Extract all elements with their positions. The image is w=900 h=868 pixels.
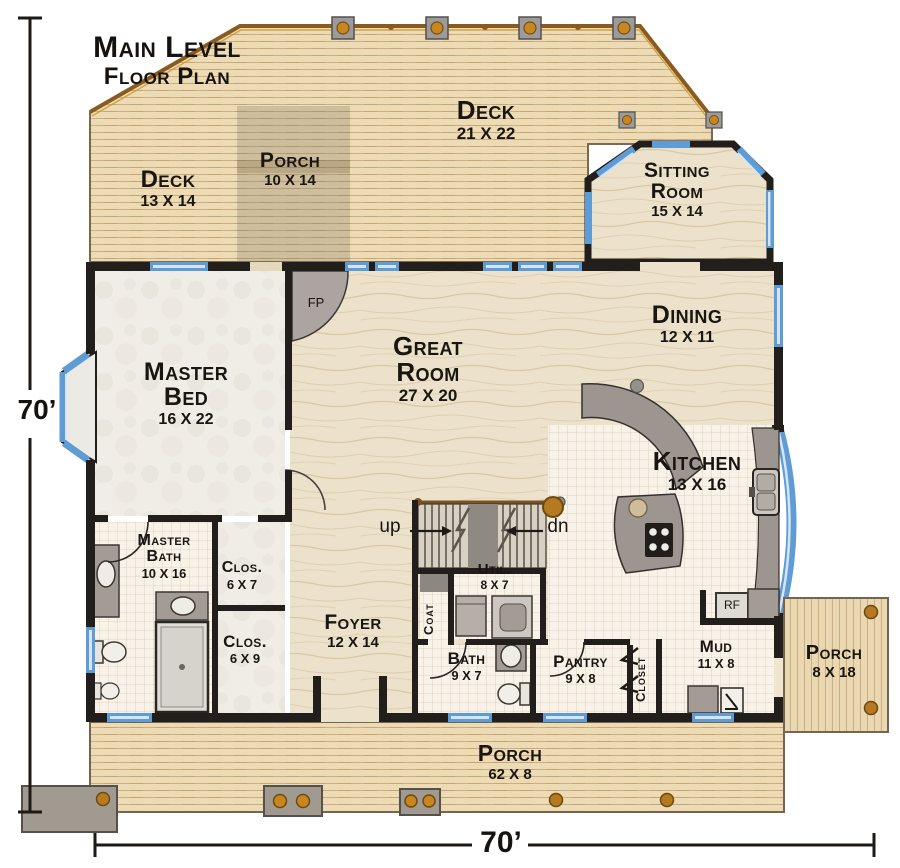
closets-floor (218, 522, 285, 713)
porch-bottom-area (22, 722, 784, 832)
room-label-bath: Bath 9 X 7 (424, 650, 509, 682)
room-label-great-room: Great Room 27 X 20 (367, 333, 489, 404)
room-label-closet-b: Clos. 6 X 9 (205, 633, 285, 665)
room-label-porch-right: Porch 8 X 18 (788, 643, 880, 680)
room-label-deck-top: Deck 21 X 22 (416, 97, 556, 142)
entry-post (313, 676, 321, 722)
shower-icon (156, 622, 208, 712)
room-label-porch-top: Porch 10 X 14 (230, 150, 350, 188)
stairs-up-label: up (368, 517, 412, 536)
washer-icon (456, 596, 486, 636)
mud-bench (688, 686, 718, 713)
toilet-icon (498, 683, 530, 705)
bidet-icon (94, 683, 119, 699)
room-label-closet-a: Clos. 6 X 7 (202, 560, 282, 591)
room-label-mud: Mud 11 X 8 (672, 638, 760, 670)
room-label-utility: Util. 8 X 7 (452, 562, 537, 591)
closet-hall-label: Closet (633, 645, 648, 713)
room-label-pantry: Pantry 9 X 8 (533, 653, 628, 685)
dimension-bottom: 70’ (462, 826, 540, 860)
floor-plan-page: Main Level Floor Plan 70’ 70’ Deck 21 X … (0, 0, 900, 868)
room-label-foyer: Foyer 12 X 14 (296, 612, 410, 650)
coat-label: Coat (421, 590, 436, 648)
utility-appliances (456, 596, 532, 638)
room-label-sitting-room: Sitting Room 15 X 14 (621, 160, 733, 219)
title-line-1: Main Level (62, 32, 272, 64)
cooktop-icon (645, 523, 673, 557)
room-label-kitchen: Kitchen 13 X 16 (607, 448, 787, 493)
step-block-2 (400, 789, 440, 815)
dimension-left: 70’ (2, 394, 72, 426)
dining-column (631, 380, 644, 393)
room-label-master-bed: Master Bed 16 X 22 (125, 360, 247, 428)
newel-post (543, 497, 563, 517)
island-post (629, 499, 647, 517)
step-block-1 (264, 786, 322, 816)
entry-post (379, 676, 387, 722)
room-label-deck-left: Deck 13 X 14 (98, 168, 238, 210)
stairs-down-label: dn (536, 517, 580, 536)
room-label-porch-bottom: Porch 62 X 8 (430, 742, 590, 782)
room-label-master-bath: Master Bath 10 X 16 (120, 533, 208, 580)
master-toilet-icon (94, 641, 126, 663)
fireplace-label: FP (300, 296, 332, 309)
refrigerator-label: RF (718, 599, 746, 611)
stair-landing (468, 504, 498, 568)
room-label-dining: Dining 12 X 11 (607, 303, 767, 346)
kitchen-island (614, 494, 683, 573)
page-title: Main Level Floor Plan (62, 32, 272, 89)
title-line-2: Floor Plan (62, 64, 272, 89)
